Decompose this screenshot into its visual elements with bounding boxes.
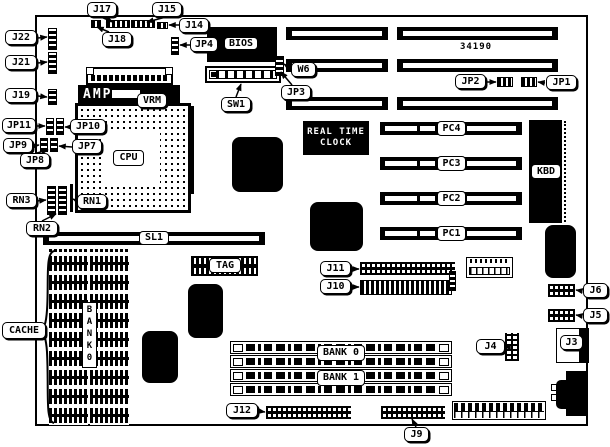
pci-slot-pc1-label: PC1 [437,226,466,241]
callout-w6: W6 [291,62,316,77]
callout-jp2: JP2 [455,74,486,89]
callout-jp11: JP11 [2,118,36,133]
callout-j12: J12 [226,403,258,418]
pci-slot-pc2-label: PC2 [437,191,466,206]
bank0-label: BANK 0 [317,345,365,361]
callout-jp1: JP1 [546,75,577,90]
sl1-slot-label: SL1 [139,231,169,245]
callout-jp9: JP9 [3,138,33,153]
pci-slot-pc4-label: PC4 [437,121,466,136]
callout-j14: J14 [179,18,209,33]
motherboard-diagram: BIOS AMP CPU REAL TIME CLOCK 34190 [0,0,610,447]
callout-sw1: SW1 [221,97,251,112]
callout-j21: J21 [5,55,37,70]
kbd-chip-label: KBD [531,164,561,179]
callout-rn3: RN3 [6,193,37,208]
callout-j10: J10 [320,279,351,294]
callout-j9: J9 [404,427,429,442]
bank1-label: BANK 1 [317,370,365,386]
callout-rn1: RN1 [77,194,107,209]
callout-rn2: RN2 [26,221,58,236]
callout-j15: J15 [152,2,182,17]
callout-j5: J5 [583,308,608,323]
cpu-label: CPU [113,150,144,166]
callout-j3: J3 [560,335,583,350]
callout-j11: J11 [320,261,351,276]
callout-j6: J6 [583,283,608,298]
callout-jp3: JP3 [281,85,311,100]
callout-jp10: JP10 [70,119,106,134]
callout-jp8: JP8 [20,153,50,168]
tag-ram-label: TAG [209,258,241,273]
callout-jp4: JP4 [190,37,218,52]
callout-j22: J22 [5,30,37,45]
callout-cache: CACHE [2,322,46,339]
callout-vrm: VRM [137,93,167,108]
callout-jp7: JP7 [72,139,102,154]
bios-chip-label: BIOS [224,37,258,50]
callout-j19: J19 [5,88,37,103]
callout-j17: J17 [87,2,117,17]
callout-j4: J4 [476,339,505,354]
pci-slot-pc3-label: PC3 [437,156,466,171]
callout-j18: J18 [102,32,132,47]
